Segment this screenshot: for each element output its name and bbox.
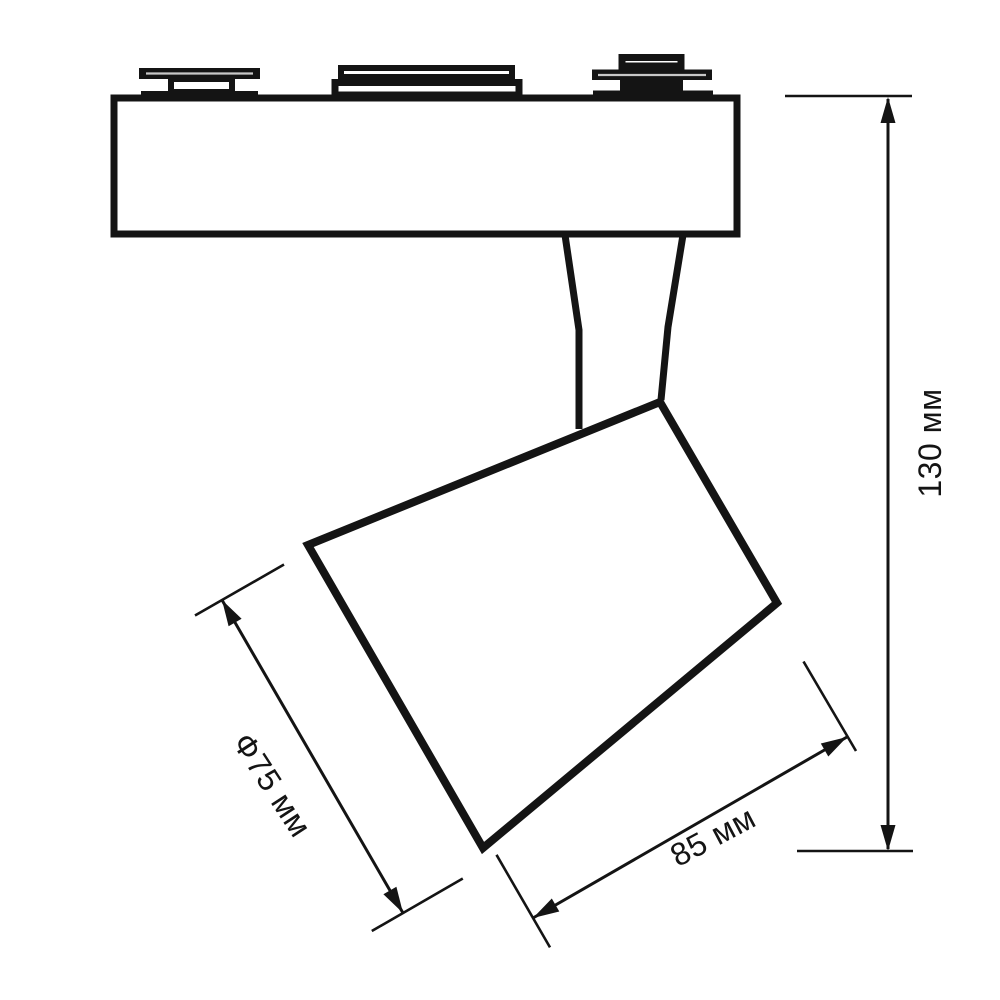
arrowhead-down (881, 825, 896, 851)
connector-block (623, 83, 680, 88)
lamp-head (308, 402, 777, 848)
stem-left-edge (565, 235, 579, 429)
extension-line-right (804, 662, 857, 752)
stem (565, 235, 683, 429)
stem-right-edge (661, 235, 683, 400)
connector-block (171, 79, 232, 92)
dimension-height: 130 мм (785, 96, 948, 851)
arrowhead-right (821, 737, 847, 757)
arrowhead-up (881, 97, 896, 123)
extension-line-left (497, 855, 551, 948)
connector-top-plate (341, 68, 512, 77)
track-connector-right (592, 58, 713, 102)
extension-line-upper (195, 565, 284, 616)
connector-knob (622, 58, 681, 67)
track-adapter-housing (114, 98, 737, 234)
drawing-canvas: 130 мм Ф75 мм 85 мм (0, 0, 1000, 1000)
arrowhead-upper (222, 600, 242, 626)
height-dimension-label: 130 мм (912, 388, 948, 497)
arrowhead-left (533, 899, 559, 919)
technical-drawing: 130 мм Ф75 мм 85 мм (0, 0, 1000, 1000)
connector-block (335, 83, 519, 96)
arrowhead-lower (383, 887, 403, 913)
track-connector-middle (335, 68, 519, 95)
extension-line-lower (372, 879, 463, 932)
width-dimension-label: 85 мм (664, 799, 761, 874)
